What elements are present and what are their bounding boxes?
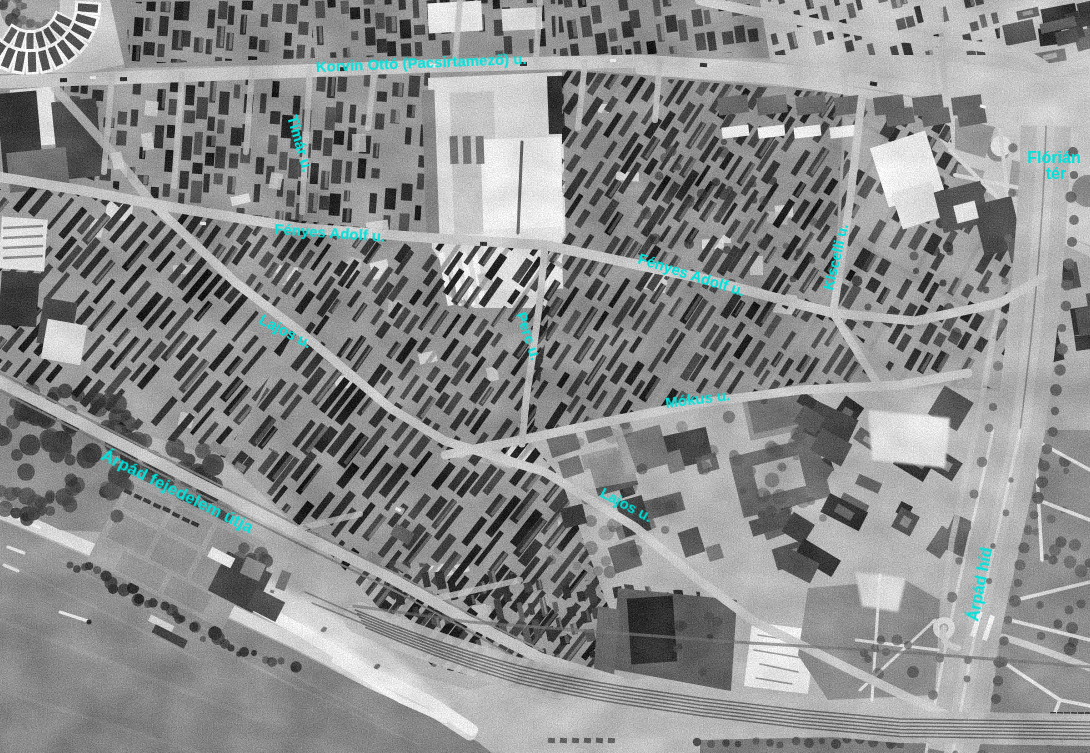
svg-text:Flórián: Flórián <box>1027 149 1080 166</box>
svg-text:tér: tér <box>1046 165 1066 182</box>
